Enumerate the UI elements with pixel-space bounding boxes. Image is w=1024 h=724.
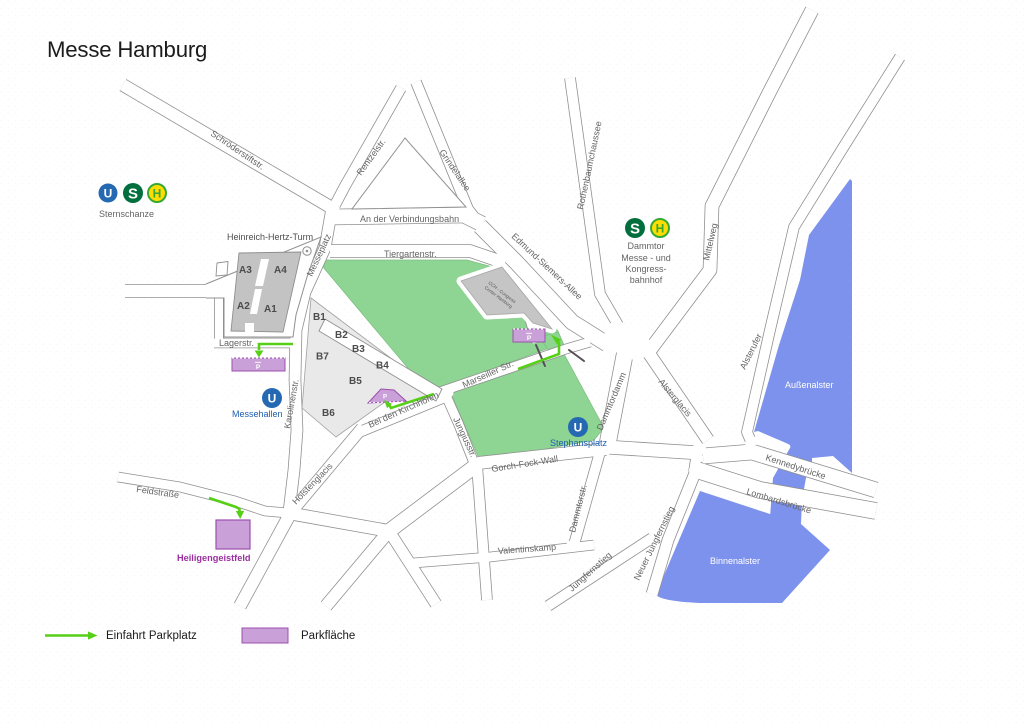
svg-text:H: H bbox=[153, 187, 162, 201]
svg-text:B6: B6 bbox=[322, 408, 335, 419]
svg-text:Einfahrt Parkplatz: Einfahrt Parkplatz bbox=[106, 630, 197, 642]
svg-text:Parkfläche: Parkfläche bbox=[301, 630, 355, 642]
svg-text:S: S bbox=[630, 221, 640, 238]
svg-text:Heiligengeistfeld: Heiligengeistfeld bbox=[177, 553, 251, 563]
svg-text:Kongress-: Kongress- bbox=[625, 264, 666, 274]
svg-text:P: P bbox=[527, 335, 532, 342]
svg-text:U: U bbox=[574, 421, 583, 435]
svg-text:bahnhof: bahnhof bbox=[630, 275, 663, 285]
svg-text:Dammtor: Dammtor bbox=[627, 241, 664, 251]
svg-text:A4: A4 bbox=[274, 265, 287, 276]
svg-text:B3: B3 bbox=[352, 344, 365, 355]
svg-text:Lagerstr.: Lagerstr. bbox=[219, 338, 254, 348]
svg-text:Stephansplatz: Stephansplatz bbox=[550, 438, 608, 448]
svg-text:B7: B7 bbox=[316, 352, 329, 363]
svg-text:A1: A1 bbox=[264, 304, 277, 315]
svg-text:S: S bbox=[128, 186, 138, 203]
svg-text:Binnenalster: Binnenalster bbox=[710, 556, 760, 566]
svg-text:P: P bbox=[256, 364, 261, 371]
svg-text:A2: A2 bbox=[237, 301, 250, 312]
svg-text:Messe - und: Messe - und bbox=[621, 253, 671, 263]
svg-text:Tiergartenstr.: Tiergartenstr. bbox=[384, 249, 437, 259]
svg-text:Messe Hamburg: Messe Hamburg bbox=[47, 37, 207, 62]
svg-text:Heinreich-Hertz-Turm: Heinreich-Hertz-Turm bbox=[227, 232, 313, 242]
svg-text:Außenalster: Außenalster bbox=[785, 380, 834, 390]
svg-text:A3: A3 bbox=[239, 265, 252, 276]
svg-text:B1: B1 bbox=[313, 312, 326, 323]
svg-text:P: P bbox=[383, 395, 387, 401]
svg-text:Sternschanze: Sternschanze bbox=[99, 209, 154, 219]
svg-text:H: H bbox=[656, 222, 665, 236]
svg-text:U: U bbox=[268, 392, 277, 406]
svg-text:Messehallen: Messehallen bbox=[232, 409, 283, 419]
svg-text:U: U bbox=[104, 187, 113, 201]
svg-text:B4: B4 bbox=[376, 361, 389, 372]
svg-text:B2: B2 bbox=[335, 330, 348, 341]
svg-text:B5: B5 bbox=[349, 376, 362, 387]
svg-text:An der Verbindungsbahn: An der Verbindungsbahn bbox=[360, 214, 459, 224]
